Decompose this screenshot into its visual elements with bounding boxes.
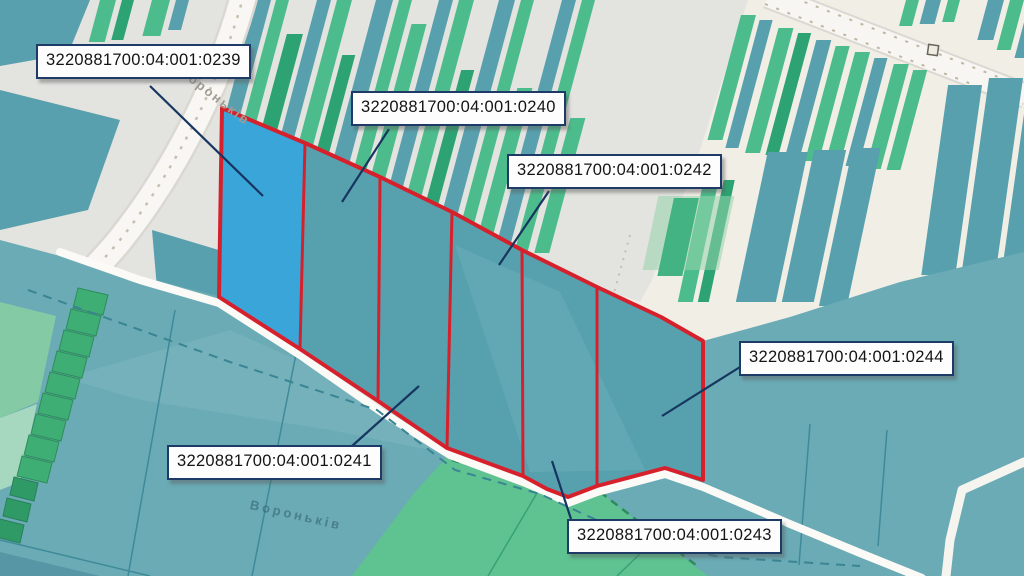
parcel-label-0244[interactable]: 3220881700:04:001:0244 bbox=[739, 341, 954, 376]
parcel-label-0241[interactable]: 3220881700:04:001:0241 bbox=[167, 445, 382, 480]
map-marker-icon bbox=[927, 44, 938, 55]
parcel-label-0240[interactable]: 3220881700:04:001:0240 bbox=[351, 91, 566, 126]
field-blocks-right bbox=[921, 72, 1024, 275]
map-canvas[interactable]: Вороньків Вороньків 3220881700:04:001:02… bbox=[0, 0, 1024, 576]
parcel-label-0243[interactable]: 3220881700:04:001:0243 bbox=[567, 519, 782, 554]
parcel-label-0242[interactable]: 3220881700:04:001:0242 bbox=[507, 154, 722, 189]
map-layers bbox=[0, 0, 1024, 576]
parcel-label-0239[interactable]: 3220881700:04:001:0239 bbox=[36, 44, 251, 79]
